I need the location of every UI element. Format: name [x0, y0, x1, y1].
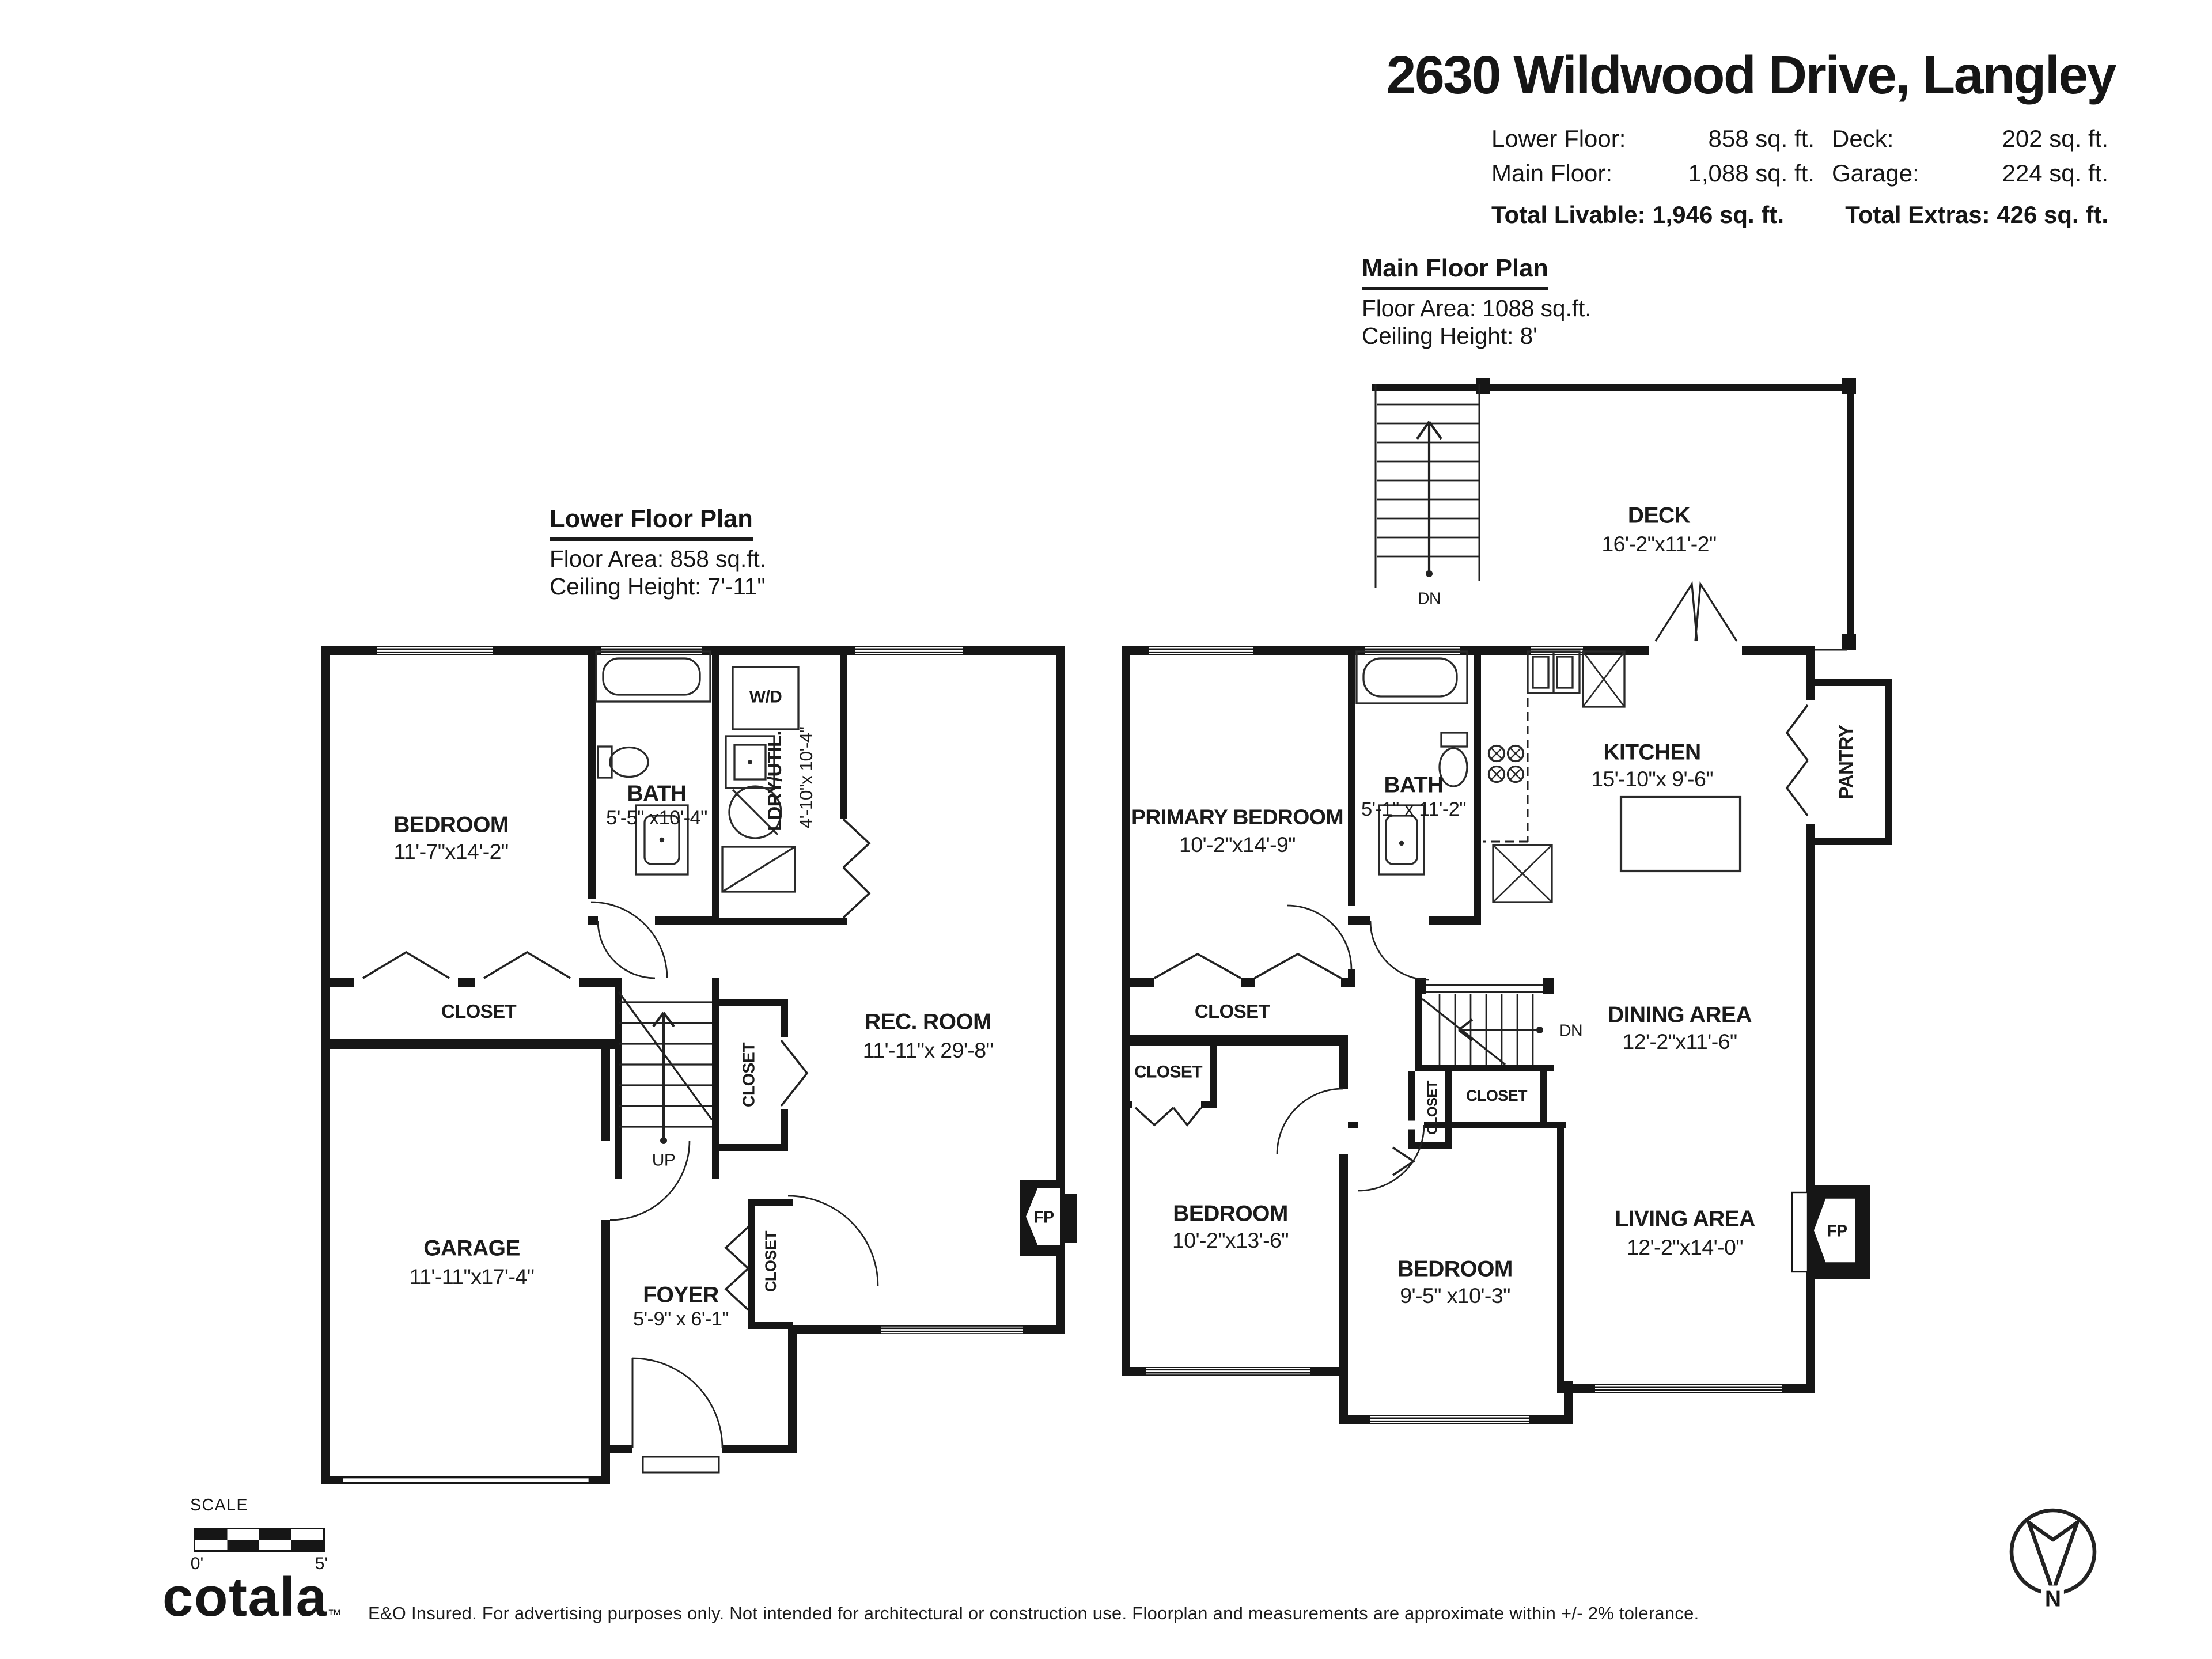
- washer-dryer-label: W/D: [749, 689, 782, 708]
- main-floor-label: Main Floor:: [1491, 159, 1650, 187]
- cotala-logo: cotala™: [162, 1566, 342, 1630]
- floorplan-page: 2630 Wildwood Drive, Langley Lower Floor…: [0, 0, 2212, 1659]
- deck-value: 202 sq. ft.: [1932, 124, 2108, 152]
- compass-icon: [2012, 1510, 2094, 1593]
- cotala-logo-text: cotala: [162, 1566, 327, 1628]
- main-plan-area: Floor Area: 1088 sq.ft.: [1362, 295, 1591, 321]
- main-dn-label: DN: [1559, 1022, 1582, 1041]
- main-bath-dims: 5'-1" x 11'-2": [1361, 800, 1466, 821]
- lower-floor-label: Lower Floor:: [1491, 124, 1650, 152]
- main-fireplace-label: FP: [1827, 1223, 1847, 1242]
- stair-closet-right-label: CLOSET: [1466, 1087, 1527, 1104]
- hall-closet-label: CLOSET: [1134, 1064, 1202, 1083]
- bedroom3-dims: 9'-5" x10'-3": [1400, 1284, 1510, 1308]
- garage-dims: 11'-11"x17'-4": [410, 1265, 535, 1289]
- primary-bedroom-label: PRIMARY BEDROOM: [1131, 805, 1343, 829]
- floorplan-drawing: [0, 0, 2212, 1659]
- lower-floor-value: 858 sq. ft.: [1650, 124, 1815, 152]
- dining-dims: 12'-2"x11'-6": [1622, 1030, 1737, 1054]
- pantry-label: PANTRY: [1837, 725, 1858, 799]
- stair-closet-left-label: CLOSET: [1425, 1081, 1441, 1135]
- foyer-closet-label: CLOSET: [762, 1231, 779, 1292]
- bedroom2-label: BEDROOM: [1173, 1200, 1288, 1226]
- primary-closet-label: CLOSET: [1195, 1002, 1270, 1023]
- deck: [1372, 378, 1856, 650]
- deck-label-room: DECK: [1628, 502, 1690, 528]
- lower-bedroom-label: BEDROOM: [393, 812, 509, 838]
- total-livable: Total Livable: 1,946 sq. ft.: [1491, 200, 1784, 228]
- kitchen-dims: 15'-10"x 9'-6": [1591, 767, 1713, 791]
- main-plan-title: Main Floor Plan: [1362, 256, 1548, 290]
- deck-dn-label: DN: [1418, 590, 1441, 609]
- disclaimer-text: E&O Insured. For advertising purposes on…: [368, 1605, 1699, 1624]
- primary-bedroom-dims: 10'-2"x14'-9": [1179, 833, 1296, 857]
- living-dims: 12'-2"x14'-0": [1627, 1236, 1743, 1260]
- cotala-logo-tm: ™: [327, 1607, 342, 1623]
- garage-value: 224 sq. ft.: [1932, 159, 2108, 187]
- main-bath-label: BATH: [1384, 772, 1443, 798]
- main-plan-heading: Main Floor Plan Floor Area: 1088 sq.ft. …: [1362, 256, 1591, 352]
- lower-plan-heading: Lower Floor Plan Floor Area: 858 sq.ft. …: [550, 506, 766, 603]
- garage-label: Garage:: [1815, 159, 1932, 187]
- lower-stair-closet-label: CLOSET: [741, 1043, 760, 1107]
- lower-bath-label: BATH: [627, 781, 686, 806]
- laundry-label: LDRY/UTIL.: [766, 731, 786, 831]
- lower-plan-title: Lower Floor Plan: [550, 506, 753, 540]
- bedroom2-dims: 10'-2"x13'-6": [1172, 1229, 1289, 1253]
- bedroom3-label: BEDROOM: [1397, 1256, 1513, 1282]
- lower-plan-area: Floor Area: 858 sq.ft.: [550, 546, 766, 571]
- main-floor-value: 1,088 sq. ft.: [1650, 159, 1815, 187]
- deck-label: Deck:: [1815, 124, 1932, 152]
- foyer-dims: 5'-9" x 6'-1": [633, 1310, 729, 1331]
- rec-room-label: REC. ROOM: [865, 1009, 991, 1035]
- scale-bar-icon: [195, 1529, 324, 1551]
- scale-label: SCALE: [190, 1497, 248, 1516]
- dining-label: DINING AREA: [1608, 1002, 1752, 1028]
- up-label: UP: [652, 1152, 676, 1171]
- total-extras: Total Extras: 426 sq. ft.: [1845, 200, 2108, 228]
- page-title: 2630 Wildwood Drive, Langley: [1387, 45, 2115, 107]
- rec-room-dims: 11'-11"x 29'-8": [863, 1039, 994, 1063]
- lower-bedroom-dims: 11'-7"x14'-2": [393, 840, 508, 864]
- lower-closet-label: CLOSET: [441, 1002, 516, 1023]
- area-stats: Lower Floor: 858 sq. ft. Deck: 202 sq. f…: [1491, 124, 2108, 187]
- garage-label-room: GARAGE: [423, 1235, 520, 1261]
- foyer-label: FOYER: [643, 1282, 718, 1308]
- living-label: LIVING AREA: [1615, 1206, 1755, 1232]
- lower-plan-ceiling: Ceiling Height: 7'-11": [550, 574, 766, 600]
- compass-north-label: N: [2041, 1586, 2065, 1612]
- lower-fireplace-label: FP: [1033, 1209, 1054, 1228]
- area-totals: Total Livable: 1,946 sq. ft. Total Extra…: [1491, 200, 2108, 228]
- kitchen-label: KITCHEN: [1603, 739, 1700, 765]
- lower-window-glazing: [342, 649, 1023, 1483]
- deck-dims: 16'-2"x11'-2": [1601, 532, 1716, 556]
- main-plan-ceiling: Ceiling Height: 8': [1362, 323, 1537, 349]
- lower-bath-dims: 5'-5" x10'-4": [606, 809, 707, 829]
- laundry-dims: 4'-10"x 10'-4": [797, 727, 817, 829]
